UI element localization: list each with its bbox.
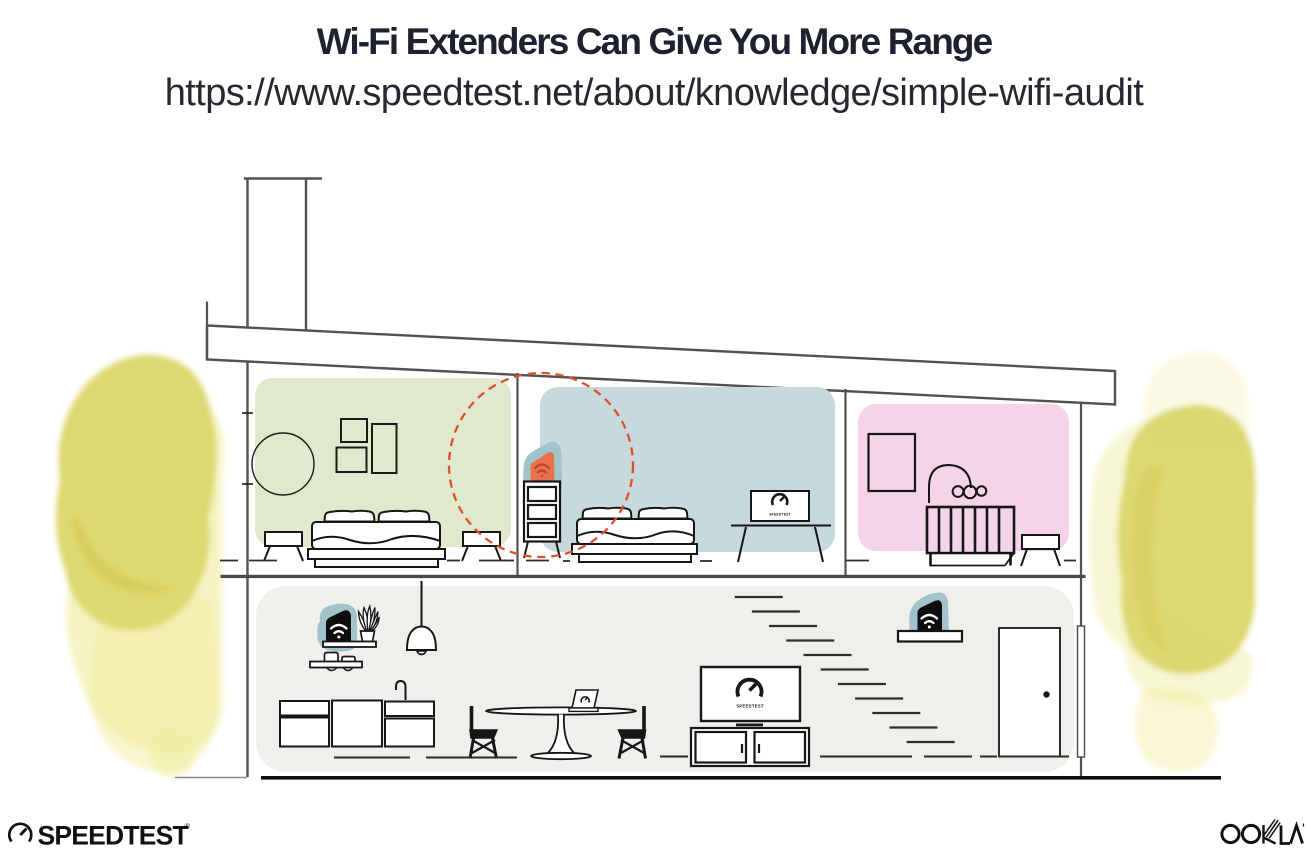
svg-text:®: ® <box>185 822 191 831</box>
svg-text:SPEEDTEST: SPEEDTEST <box>769 513 791 517</box>
svg-text:SPEEDTEST: SPEEDTEST <box>38 821 189 851</box>
svg-text:SPEEDTEST: SPEEDTEST <box>736 704 764 709</box>
